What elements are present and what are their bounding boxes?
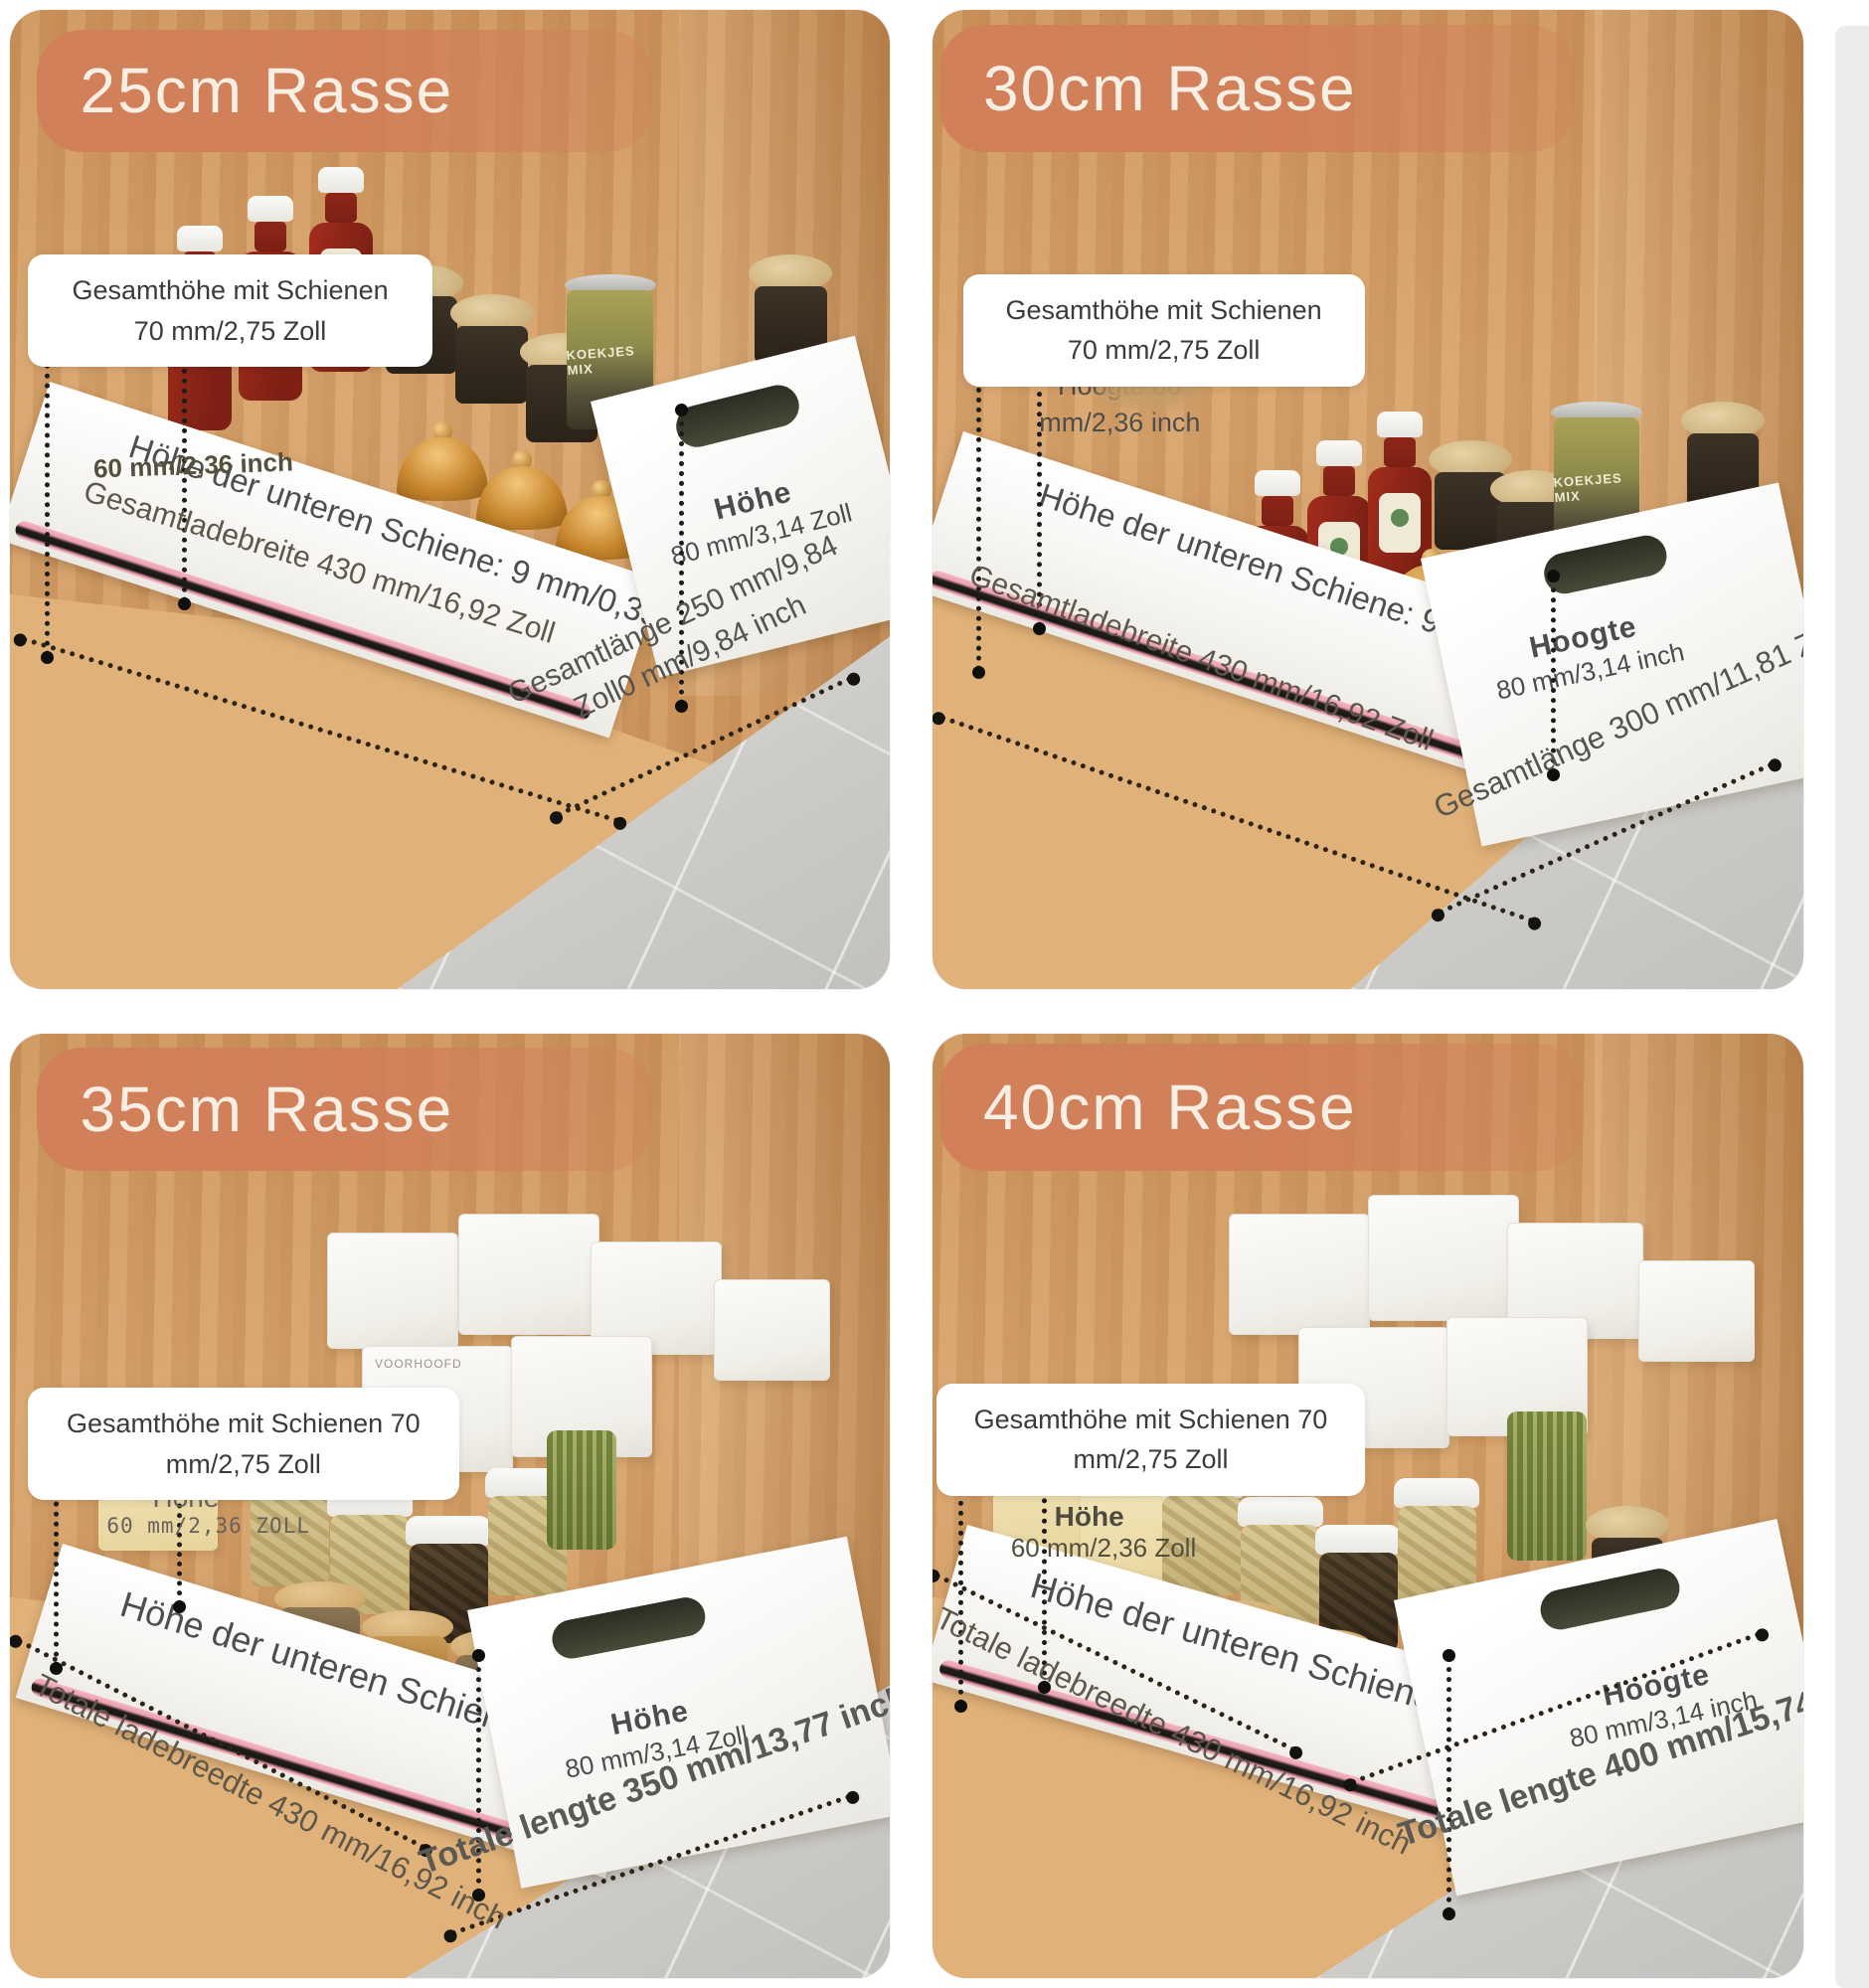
green-pasta-jar xyxy=(547,1430,616,1550)
white-box xyxy=(1638,1260,1755,1362)
drawer-handle xyxy=(1537,1566,1683,1633)
overall-height-box: Gesamthöhe mit Schienen 70 mm/2,75 Zoll xyxy=(963,274,1365,387)
size-title: 30cm Rasse xyxy=(939,52,1357,125)
white-box xyxy=(714,1279,830,1381)
overall-height-box: Gesamthöhe mit Schienen 70 mm/2,75 Zoll xyxy=(28,254,433,367)
green-pasta-jar xyxy=(1507,1411,1587,1561)
product-infographic-page: { "colors": { "banner": "#d17f59", "wood… xyxy=(0,0,1869,1988)
tin-label: KOEKJES MIX xyxy=(1553,469,1640,505)
white-box xyxy=(1368,1195,1519,1321)
tin-label: KOEKJES MIX xyxy=(566,342,653,378)
panel-30cm: KOEKJES MIX Höhe der unteren Schiene: 9 … xyxy=(933,10,1803,989)
size-title: 40cm Rasse xyxy=(939,1071,1357,1144)
front-height-dotted-line xyxy=(1446,1657,1451,1912)
drawer-handle xyxy=(549,1593,708,1662)
overall-height-box: Gesamthöhe mit Schienen 70 mm/2,75 Zoll xyxy=(936,1384,1364,1496)
panel-25cm: KOEKJES MIX Höhe der unteren Schiene: 9 … xyxy=(10,10,890,989)
overall-height-box: Gesamthöhe mit Schienen 70 mm/2,75 Zoll xyxy=(28,1388,459,1500)
drawer-handle xyxy=(1540,531,1670,596)
inner-height-label: Höhe 60 mm/2,36 Zoll xyxy=(1011,1501,1168,1564)
size-banner: 35cm Rasse xyxy=(37,1048,653,1171)
size-banner: 40cm Rasse xyxy=(939,1044,1584,1171)
size-title: 25cm Rasse xyxy=(37,54,454,127)
gold-lid-jar xyxy=(397,421,488,501)
white-box xyxy=(458,1214,599,1335)
size-banner: 25cm Rasse xyxy=(37,30,653,152)
white-box xyxy=(1229,1214,1370,1335)
size-banner: 30cm Rasse xyxy=(939,25,1575,152)
white-box xyxy=(327,1233,458,1349)
drawer-handle xyxy=(672,381,804,452)
size-title: 35cm Rasse xyxy=(37,1073,454,1146)
gold-lid-jar xyxy=(476,450,568,530)
panel-40cm: Höhe der unteren Schiene: 9 mm/0,35 Zoll… xyxy=(933,1034,1803,1978)
page-edge-strip xyxy=(1835,26,1869,1988)
panel-35cm: VOORHOOFD Höhe der unteren Schiene: 9 mm… xyxy=(10,1034,890,1978)
